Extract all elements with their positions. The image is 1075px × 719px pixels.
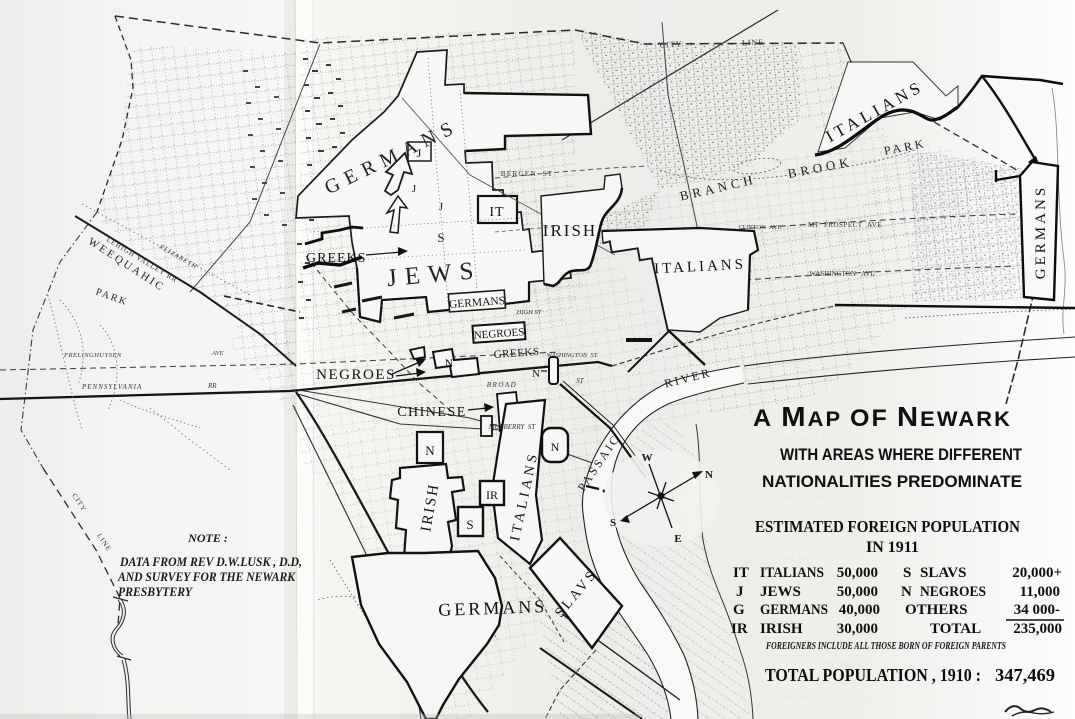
svg-text:DATA FROM REV D.W.LUSK , D.D,: DATA FROM REV D.W.LUSK , D.D, bbox=[119, 555, 302, 569]
svg-text:ST: ST bbox=[576, 377, 585, 385]
svg-text:N: N bbox=[532, 368, 540, 380]
svg-text:nl mm ln ml nn lm ll: nl mm ln ml nn lm ll bbox=[770, 491, 861, 503]
svg-text:CHINESE: CHINESE bbox=[397, 405, 467, 420]
svg-text:WASHINGTON ST: WASHINGTON ST bbox=[547, 352, 598, 359]
svg-text:BROAD: BROAD bbox=[487, 381, 517, 389]
svg-text:20,000+: 20,000+ bbox=[1012, 565, 1062, 581]
svg-text:N: N bbox=[551, 440, 560, 454]
svg-text:347,469: 347,469 bbox=[995, 665, 1055, 685]
svg-text:IN 1911: IN 1911 bbox=[866, 539, 919, 556]
svg-text:AVE: AVE bbox=[211, 350, 224, 357]
svg-text:PRESBYTERY: PRESBYTERY bbox=[118, 585, 193, 599]
svg-text:lm nn ml mn lnm: lm nn ml mn lnm bbox=[755, 551, 832, 563]
svg-text:IT: IT bbox=[489, 205, 504, 220]
svg-text:IRISH: IRISH bbox=[760, 621, 803, 637]
svg-text:LINE: LINE bbox=[742, 38, 765, 48]
svg-text:OTHERS: OTHERS bbox=[905, 602, 968, 618]
svg-text:WITH AREAS WHERE DIFFERENT: WITH AREAS WHERE DIFFERENT bbox=[780, 445, 1023, 464]
svg-text:40,000: 40,000 bbox=[839, 602, 880, 618]
svg-text:50,000: 50,000 bbox=[837, 584, 878, 600]
svg-text:11,000: 11,000 bbox=[1020, 584, 1060, 600]
svg-text:ESTIMATED FOREIGN POPULATION: ESTIMATED FOREIGN POPULATION bbox=[755, 517, 1021, 536]
svg-text:RR: RR bbox=[207, 382, 217, 390]
svg-text:TOTAL POPULATION , 1910 :: TOTAL POPULATION , 1910 : bbox=[765, 665, 981, 685]
svg-text:N: N bbox=[425, 443, 435, 458]
svg-text:S: S bbox=[903, 565, 911, 581]
svg-text:FOREIGNERS INCLUDE ALL THOSE B: FOREIGNERS INCLUDE ALL THOSE BORN OF FOR… bbox=[765, 641, 1006, 652]
svg-text:CLIFTON AVE: CLIFTON AVE bbox=[738, 224, 781, 231]
svg-text:lnm ml nn lm mln nl: lnm ml nn lm mln nl bbox=[780, 691, 871, 703]
svg-text:MT PROSPECT AVE: MT PROSPECT AVE bbox=[808, 221, 882, 229]
svg-text:NEGROES: NEGROES bbox=[316, 367, 396, 383]
svg-text:IR: IR bbox=[731, 621, 748, 637]
svg-text:ITALIANS: ITALIANS bbox=[760, 565, 824, 581]
svg-text:IRISH: IRISH bbox=[543, 221, 597, 240]
svg-text:GREEKS: GREEKS bbox=[306, 251, 366, 266]
svg-text:NEGROES: NEGROES bbox=[920, 584, 986, 600]
svg-text:HIGH ST: HIGH ST bbox=[516, 309, 542, 316]
svg-text:GERMANS: GERMANS bbox=[438, 596, 548, 620]
svg-text:J: J bbox=[736, 584, 744, 600]
svg-text:PENNSYLVANIA: PENNSYLVANIA bbox=[81, 383, 142, 391]
svg-text:S: S bbox=[610, 517, 616, 529]
svg-text:WASHINGTON AVE: WASHINGTON AVE bbox=[809, 270, 874, 278]
svg-text:BERGEN ST: BERGEN ST bbox=[501, 169, 554, 178]
svg-text:IT: IT bbox=[733, 565, 749, 581]
svg-text:S: S bbox=[466, 517, 473, 532]
svg-text:N: N bbox=[445, 356, 454, 370]
svg-text:S: S bbox=[437, 230, 444, 245]
svg-text:IR: IR bbox=[486, 488, 498, 502]
svg-text:GERMANS: GERMANS bbox=[760, 602, 828, 618]
svg-text:30,000: 30,000 bbox=[837, 621, 878, 637]
svg-text:N: N bbox=[705, 469, 713, 481]
svg-text:W: W bbox=[642, 452, 653, 464]
svg-text:J: J bbox=[412, 183, 417, 195]
svg-text:ll ml nm mny lm nl: ll ml nm mny lm nl bbox=[760, 431, 845, 443]
svg-text:AND SURVEY FOR THE NEWARK: AND SURVEY FOR THE NEWARK bbox=[117, 570, 296, 584]
svg-text:FRELINGHUYSEN: FRELINGHUYSEN bbox=[63, 352, 122, 359]
svg-text:N: N bbox=[901, 584, 912, 600]
svg-text:JEWS: JEWS bbox=[760, 584, 801, 600]
svg-text:SLAVS: SLAVS bbox=[920, 565, 966, 581]
svg-text:235,000: 235,000 bbox=[1013, 621, 1062, 637]
svg-text:NOTE :: NOTE : bbox=[187, 531, 228, 545]
svg-text:50,000: 50,000 bbox=[837, 565, 878, 581]
svg-text:G: G bbox=[733, 602, 745, 618]
svg-text:GERMANS: GERMANS bbox=[1033, 185, 1049, 279]
svg-text:CITY: CITY bbox=[659, 39, 682, 49]
svg-text:TOTAL: TOTAL bbox=[930, 621, 981, 637]
svg-text:E: E bbox=[674, 533, 681, 545]
svg-text:NATIONALITIES PREDOMINATE: NATIONALITIES PREDOMINATE bbox=[762, 472, 1022, 491]
svg-text:MULBERRY ST: MULBERRY ST bbox=[488, 423, 537, 431]
svg-text:34 000-: 34 000- bbox=[1014, 602, 1060, 618]
